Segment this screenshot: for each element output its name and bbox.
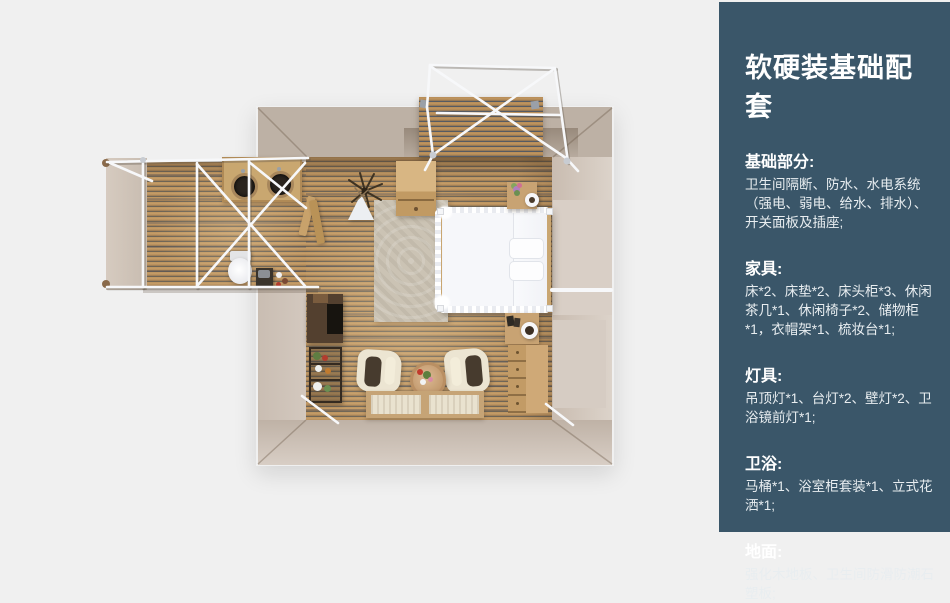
sink-basin-right [267,171,294,198]
headboard-wall-panel [553,200,612,315]
plant-decor [324,385,331,392]
bed-canopy-post [546,305,553,312]
decor-item [315,365,322,372]
bed-canopy-post [437,208,444,215]
section-body: 马桶*1、浴室柜套装*1、立式花洒*1; [745,477,937,515]
bathroom-item [276,272,282,278]
section-heading: 家具: [745,255,936,279]
floor-mats [366,391,484,418]
faucet [277,167,281,171]
writing-desk [307,294,343,343]
teacup [525,193,539,207]
pillow [509,238,544,259]
section-body: 床*2、床垫*2、床头柜*3、休闲茶几*1、休闲椅子*2、储物柜*1，衣帽架*1… [745,282,937,339]
section-heading: 卫浴: [745,450,936,474]
toilet [228,258,252,284]
section-basics: 基础部分: 卫生间隔断、防水、水电系统（强电、弱电、给水、排水）、开关面板及插座… [745,148,936,232]
section-furniture: 家具: 床*2、床垫*2、床头柜*3、休闲茶几*1、休闲椅子*2、储物柜*1，衣… [745,255,936,339]
faucet [241,169,245,173]
laundry-unit [256,268,273,286]
section-body: 卫生间隔断、防水、水电系统（强电、弱电、给水、排水）、开关面板及插座; [745,175,937,232]
section-heading: 灯具: [745,362,936,386]
section-lighting: 灯具: 吊顶灯*1、台灯*2、壁灯*2、卫浴镜前灯*1; [745,362,936,427]
decor-item [322,355,328,361]
sidebar-title: 软硬装基础配套 [745,46,936,124]
bathroom-item [282,278,288,284]
tent-pole-cap [102,280,110,288]
floorplan-render [0,0,719,534]
section-body: 强化木地板、卫生间防滑防潮石塑板; [745,565,937,603]
bed-duvet [443,212,514,308]
plant-decor [313,352,321,360]
lounge-chair-left [356,349,403,394]
section-body: 吊顶灯*1、台灯*2、壁灯*2、卫浴镜前灯*1; [745,389,937,427]
bed-canopy-post [437,305,444,312]
teepee-decor [348,194,374,220]
canopy-bracket [530,100,539,109]
flower-decor [517,183,522,188]
section-bathroom: 卫浴: 马桶*1、浴室柜套装*1、立式花洒*1; [745,450,936,515]
bed-canopy-post [546,208,553,215]
flower-decor [428,377,433,382]
coffee-mug [521,322,538,339]
desk-decor [313,294,328,303]
flower-decor [313,382,322,391]
lounge-chair-right [443,347,491,395]
section-heading: 地面: [745,538,936,562]
tent-pole-cap [102,159,110,167]
storage-dresser [508,345,548,413]
pillow [509,261,544,281]
wall-panel-lower [553,320,606,408]
section-flooring: 地面: 强化木地板、卫生间防滑防潮石塑板; [745,538,936,603]
spec-sidebar: 软硬装基础配套 基础部分: 卫生间隔断、防水、水电系统（强电、弱电、给水、排水）… [719,2,950,532]
section-heading: 基础部分: [745,148,936,172]
decor-item [420,379,426,385]
laptop [327,304,343,334]
canopy-bracket [419,99,428,108]
bed-ruffle [440,306,549,313]
sink-basin-left [231,173,258,200]
room-wall-bottom [258,420,612,465]
dressing-table [396,161,436,216]
bathroom-wall-left [106,158,147,290]
top-deck-floor [419,97,543,157]
bathroom-edge-shadow [143,288,318,293]
flower-decor [514,190,520,196]
bathroom-item [276,282,281,287]
photo-frame [514,318,521,328]
decor-item [325,368,331,374]
